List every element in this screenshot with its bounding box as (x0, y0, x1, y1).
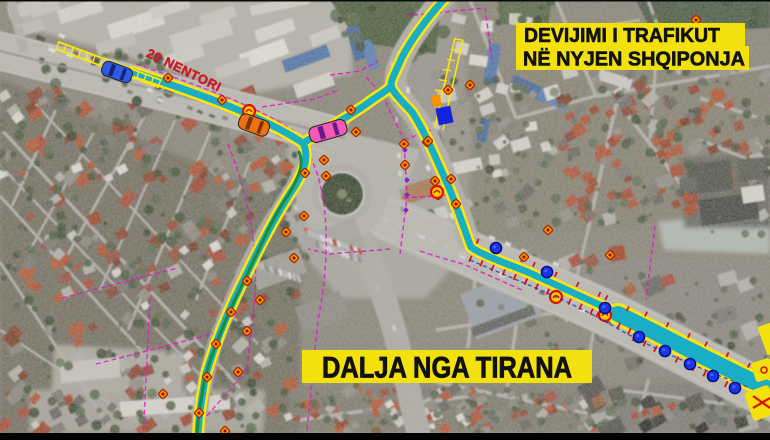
svg-text:DALJA NGA TIRANA: DALJA NGA TIRANA (322, 352, 572, 385)
svg-text:DEVIJIMI I TRAFIKUT: DEVIJIMI I TRAFIKUT (524, 25, 720, 47)
svg-text:NË NYJEN SHQIPONJA: NË NYJEN SHQIPONJA (523, 48, 745, 71)
